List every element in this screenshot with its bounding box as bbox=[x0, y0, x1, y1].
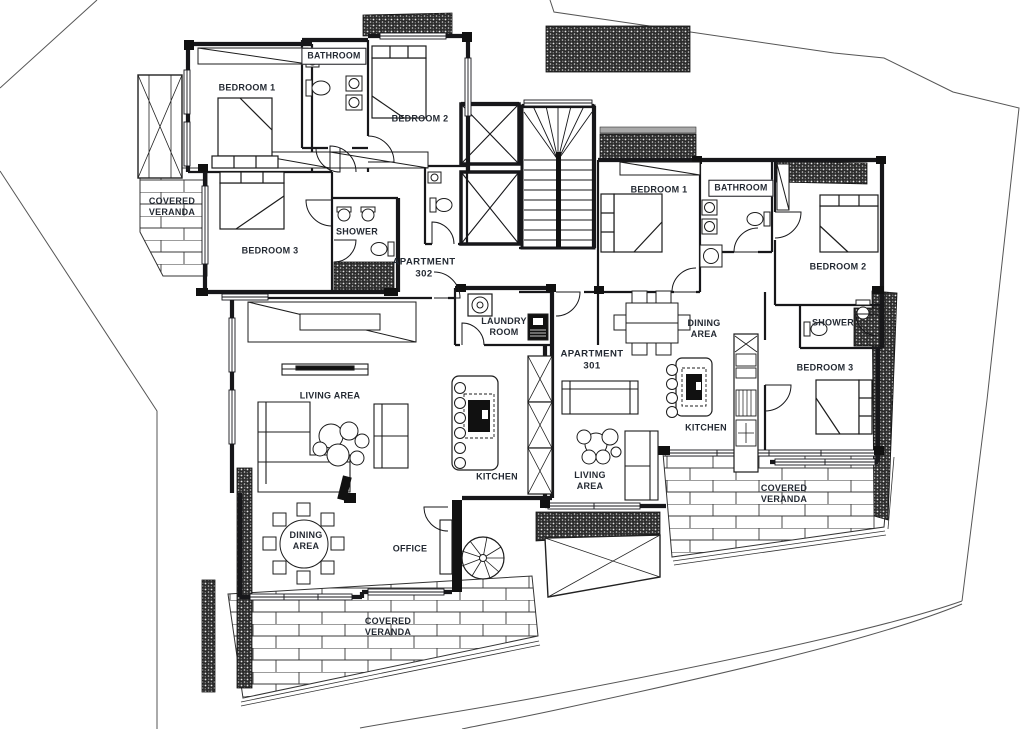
floor-plan-page: BEDROOM 1 BATHROOM BEDROOM 2 COVERED VER… bbox=[0, 0, 1033, 729]
dining-table-301 bbox=[614, 291, 690, 355]
dining-table-302 bbox=[263, 503, 344, 584]
verandas bbox=[140, 168, 890, 698]
office-desk bbox=[440, 520, 452, 574]
spiral-staircase bbox=[462, 537, 504, 579]
floor-plan-drawing bbox=[0, 0, 1033, 729]
kitchen-302 bbox=[452, 356, 552, 494]
staircase bbox=[522, 106, 594, 248]
planter-edge-band bbox=[600, 127, 696, 133]
